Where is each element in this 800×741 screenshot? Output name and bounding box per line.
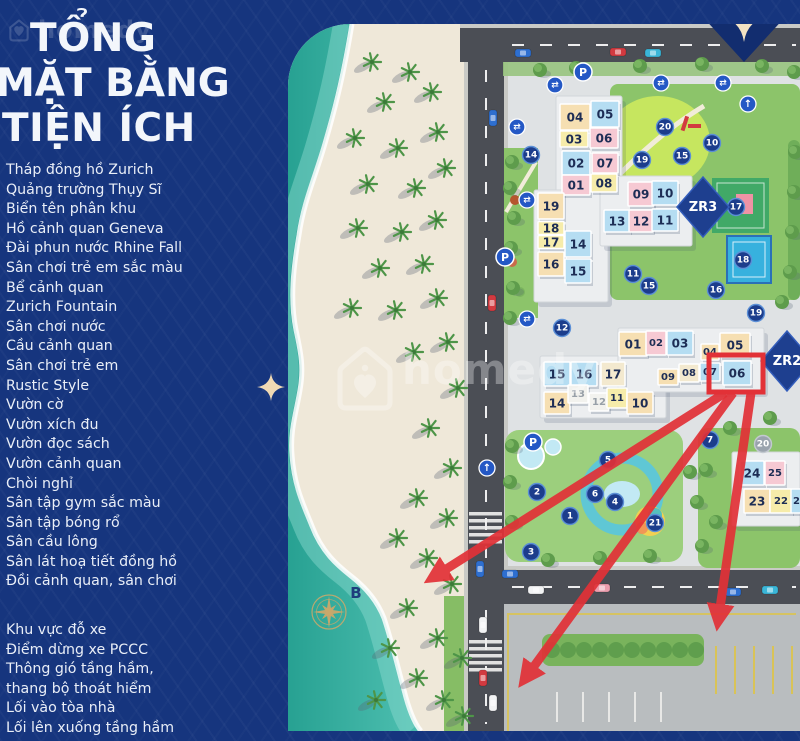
zone-label: ZR2 xyxy=(773,354,800,369)
title-line: MẶT BẰNG xyxy=(0,61,288,106)
building-unit: 16 xyxy=(538,252,566,279)
legend-item: Sân tập bóng rổ xyxy=(6,514,288,534)
building-unit: 05 xyxy=(591,101,621,130)
parking-stall-line xyxy=(582,692,584,722)
building-number: 12 xyxy=(633,215,650,229)
legend-item: Hồ cảnh quan Geneva xyxy=(6,220,288,240)
parking-stall-line xyxy=(634,692,636,722)
building-unit: 19 xyxy=(538,193,566,222)
badge-number: 14 xyxy=(525,151,538,161)
two-way-glyph: ⇄ xyxy=(523,196,531,206)
numbered-badge: 16 xyxy=(708,282,725,299)
car xyxy=(502,570,518,578)
building-number: 10 xyxy=(632,397,649,411)
building-number: 05 xyxy=(597,108,614,122)
building-number: 17 xyxy=(543,236,560,250)
building-number: 18 xyxy=(543,222,560,236)
building-number: 01 xyxy=(568,179,585,193)
legend-item: Quảng trường Thụy Sĩ xyxy=(6,181,288,201)
legend-item: Rustic Style xyxy=(6,377,288,397)
zone-label: ZR3 xyxy=(689,200,717,215)
hedge-bush xyxy=(560,642,576,658)
building-number: 08 xyxy=(596,177,613,191)
badge-number: 16 xyxy=(710,286,723,296)
parking-lot xyxy=(504,604,800,731)
crosswalk xyxy=(469,512,502,516)
parking-marker: P xyxy=(496,248,514,266)
building-number: 21 xyxy=(793,496,800,507)
direction-glyph: ↑ xyxy=(483,463,491,474)
direction-icon: ↑ xyxy=(740,96,756,112)
badge-number: 19 xyxy=(750,309,763,319)
building-unit: 17 xyxy=(538,236,566,252)
numbered-badge: 20 xyxy=(755,436,772,453)
building-unit: 25 xyxy=(765,461,787,488)
legend-item: Biển tên phân khu xyxy=(6,200,288,220)
building-number: 12 xyxy=(592,397,606,408)
numbered-badge: 2 xyxy=(529,484,546,501)
building-unit: 21 xyxy=(791,489,800,516)
legend-item: Vườn cờ xyxy=(6,396,288,416)
sparkle-icon xyxy=(254,370,288,404)
building-unit: 03 xyxy=(667,331,695,358)
numbered-badge: 14 xyxy=(523,147,540,164)
parking-marker: P xyxy=(574,63,592,81)
building-number: 13 xyxy=(609,215,626,229)
legend-item: Sân lát hoạ tiết đồng hồ xyxy=(6,553,288,573)
legend-item: Vườn cảnh quan xyxy=(6,455,288,475)
legend-item: Lối vào tòa nhà xyxy=(6,699,288,719)
badge-number: 1 xyxy=(567,512,573,522)
direction-icon: ↑ xyxy=(479,460,495,476)
building-unit: 06 xyxy=(590,128,620,151)
legend-item: Sân cầu lông xyxy=(6,533,288,553)
building-number: 25 xyxy=(768,468,782,479)
badge-number: 20 xyxy=(659,123,672,133)
building-unit: 09 xyxy=(658,369,680,388)
hedge-bush xyxy=(576,642,592,658)
badge-number: 15 xyxy=(676,152,689,162)
building-unit: 04 xyxy=(560,104,592,133)
legend-item: Sân chơi nước xyxy=(6,318,288,338)
badge-number: 15 xyxy=(643,282,656,292)
parking-stall-line xyxy=(556,692,558,722)
hedge-bush xyxy=(608,642,624,658)
building-number: 11 xyxy=(610,393,624,404)
car xyxy=(610,48,626,56)
numbered-badge: 20 xyxy=(657,119,674,136)
building-unit: 02 xyxy=(562,151,592,178)
car xyxy=(762,586,778,594)
numbered-badge: 11 xyxy=(625,266,642,283)
numbered-badge: 4 xyxy=(607,494,624,511)
legend-item: Vườn xích đu xyxy=(6,416,288,436)
building-unit: 13 xyxy=(604,210,632,235)
badge-number: 11 xyxy=(627,270,640,280)
car xyxy=(476,561,484,577)
parking-stall-line xyxy=(660,692,662,722)
hedge-bush xyxy=(640,642,656,658)
hedge-bush xyxy=(624,642,640,658)
legend-item: Vườn đọc sách xyxy=(6,435,288,455)
building-number: 08 xyxy=(682,368,696,379)
car xyxy=(645,49,661,57)
legend-item: Đài phun nước Rhine Fall xyxy=(6,239,288,259)
hedge-bush xyxy=(592,642,608,658)
crosswalk xyxy=(469,526,502,530)
badge-number: 7 xyxy=(707,436,713,446)
building-number: 09 xyxy=(661,372,675,383)
legend-item: Sân chơi trẻ em xyxy=(6,357,288,377)
building-number: 22 xyxy=(774,496,788,507)
legend-item: Chòi nghỉ xyxy=(6,475,288,495)
building-unit: 11 xyxy=(607,388,629,411)
hedge-bush xyxy=(672,642,688,658)
building-unit: 07 xyxy=(592,153,620,176)
car xyxy=(725,588,741,596)
numbered-badge: 15 xyxy=(674,148,691,165)
traffic-legend-list: Khu vực đỗ xeĐiểm dừng xe PCCCThông gió … xyxy=(0,621,288,739)
building-unit: 06 xyxy=(723,361,753,388)
crosswalk xyxy=(469,519,502,523)
building-unit: 14 xyxy=(565,231,593,260)
building-number: 16 xyxy=(543,258,560,272)
building-number: 17 xyxy=(605,368,622,382)
badge-number: 21 xyxy=(649,519,662,529)
numbered-badge: 21 xyxy=(647,515,664,532)
building-unit: 03 xyxy=(560,131,590,150)
hedge-bush xyxy=(688,642,704,658)
numbered-badge: 3 xyxy=(523,544,540,561)
legend-item: Sân chơi trẻ em sắc màu xyxy=(6,259,288,279)
building-unit: 08 xyxy=(679,364,701,385)
badge-number: 20 xyxy=(757,440,770,450)
legend-item: Sân tập gym sắc màu xyxy=(6,494,288,514)
badge-number: 17 xyxy=(730,203,743,213)
two-way-glyph: ⇄ xyxy=(719,79,727,89)
building-number: 07 xyxy=(597,157,614,171)
watermark-corner: homedy xyxy=(6,16,152,44)
crosswalk xyxy=(469,661,502,665)
masterplan-flyer: homedy TỔNG MẶT BẰNG TIỆN ÍCH Tháp đồng … xyxy=(0,0,800,741)
parking-letter: P xyxy=(501,251,509,264)
numbered-badge: 18 xyxy=(735,252,752,269)
legend-item: Lối lên xuống tầng hầm xyxy=(6,719,288,739)
legend-item: Khu vực đỗ xe xyxy=(6,621,288,641)
building-number: 24 xyxy=(744,467,761,481)
crosswalk xyxy=(469,654,502,658)
badge-number: 18 xyxy=(737,256,750,266)
watermark-house-icon xyxy=(6,17,32,43)
badge-number: 3 xyxy=(528,548,534,558)
building-number: 19 xyxy=(543,200,560,214)
building-unit: 11 xyxy=(652,209,680,234)
two-way-traffic-icon: ⇄ xyxy=(509,119,525,135)
two-way-traffic-icon: ⇄ xyxy=(547,77,563,93)
legend-item: Zurich Fountain xyxy=(6,298,288,318)
parking-marker: P xyxy=(524,433,542,451)
info-panel: homedy TỔNG MẶT BẰNG TIỆN ÍCH Tháp đồng … xyxy=(0,0,288,741)
badge-number: 4 xyxy=(612,498,618,508)
numbered-badge: 19 xyxy=(634,152,651,169)
car xyxy=(489,695,497,711)
legend-item: Tháp đồng hồ Zurich xyxy=(6,161,288,181)
car xyxy=(515,49,531,57)
numbered-badge: 1 xyxy=(562,508,579,525)
parking-stall-line xyxy=(608,692,610,722)
building-unit: 01 xyxy=(619,332,649,359)
car xyxy=(528,586,544,594)
building-unit: 15 xyxy=(565,259,593,286)
car xyxy=(479,670,487,686)
numbered-badge: 12 xyxy=(554,320,571,337)
two-way-traffic-icon: ⇄ xyxy=(519,192,535,208)
building-number: 23 xyxy=(749,495,766,509)
building-number: 14 xyxy=(549,397,566,411)
building-unit: 08 xyxy=(591,174,619,195)
play-equipment xyxy=(688,124,701,128)
numbered-badge: 15 xyxy=(641,278,658,295)
watermark-brand-text: homedy xyxy=(402,345,596,394)
car xyxy=(479,617,487,633)
two-way-traffic-icon: ⇄ xyxy=(653,75,669,91)
building-number: 04 xyxy=(567,111,584,125)
two-way-glyph: ⇄ xyxy=(657,79,665,89)
crosswalk xyxy=(469,647,502,651)
building-number: 02 xyxy=(649,338,663,349)
building-number: 01 xyxy=(625,338,642,352)
badge-number: 2 xyxy=(534,488,540,498)
building-number: 09 xyxy=(633,188,650,202)
building-number: 14 xyxy=(570,238,587,252)
legend-item: Cầu cảnh quan xyxy=(6,337,288,357)
building-number: 06 xyxy=(596,132,613,146)
building-number: 05 xyxy=(727,339,744,353)
building-unit: 10 xyxy=(627,392,655,417)
numbered-badge: 19 xyxy=(748,305,765,322)
building-unit: 01 xyxy=(562,175,592,198)
numbered-badge: 6 xyxy=(587,486,604,503)
pool xyxy=(545,439,561,455)
building-unit: 23 xyxy=(744,489,772,516)
building-unit: 02 xyxy=(646,331,668,358)
building-unit: 10 xyxy=(652,181,680,208)
building-number: 11 xyxy=(657,214,674,228)
car xyxy=(489,110,497,126)
building-unit: 12 xyxy=(629,210,655,235)
amenity-legend-list: Tháp đồng hồ ZurichQuảng trường Thụy SĩB… xyxy=(0,161,288,592)
watermark-brand-text: homedy xyxy=(38,16,152,44)
site-plan-map-frame: 0405030602070108191817161415091013121101… xyxy=(288,24,800,731)
legend-item: Điểm dừng xe PCCC xyxy=(6,641,288,661)
hedge-bush xyxy=(656,642,672,658)
title-line: TIỆN ÍCH xyxy=(2,106,288,151)
building-number: 15 xyxy=(570,265,587,279)
crosswalk xyxy=(469,640,502,644)
building-number: 02 xyxy=(568,157,585,171)
two-way-traffic-icon: ⇄ xyxy=(519,311,535,327)
site-plan-map: 0405030602070108191817161415091013121101… xyxy=(288,24,800,731)
car xyxy=(488,295,496,311)
parking-letter: P xyxy=(579,66,587,79)
two-way-glyph: ⇄ xyxy=(551,81,559,91)
direction-glyph: ↑ xyxy=(744,99,752,110)
parking-letter: P xyxy=(529,436,537,449)
building-number: 06 xyxy=(729,367,746,381)
compass-north-label: B xyxy=(350,584,361,602)
badge-number: 10 xyxy=(706,139,719,149)
building-number: 03 xyxy=(566,133,583,147)
legend-item: Thông gió tầng hầm, thang bộ thoát hiểm xyxy=(6,660,288,699)
badge-number: 19 xyxy=(636,156,649,166)
legend-item: Đồi cảnh quan, sân chơi xyxy=(6,572,288,592)
badge-number: 12 xyxy=(556,324,569,334)
numbered-badge: 10 xyxy=(704,135,721,152)
legend-item: Bể cảnh quan xyxy=(6,279,288,299)
building-unit: 17 xyxy=(601,362,627,389)
numbered-badge: 17 xyxy=(728,199,745,216)
badge-number: 6 xyxy=(592,490,598,500)
building-number: 10 xyxy=(657,187,674,201)
two-way-glyph: ⇄ xyxy=(513,123,521,133)
building-number: 03 xyxy=(672,337,689,351)
two-way-glyph: ⇄ xyxy=(523,315,531,325)
two-way-traffic-icon: ⇄ xyxy=(715,75,731,91)
